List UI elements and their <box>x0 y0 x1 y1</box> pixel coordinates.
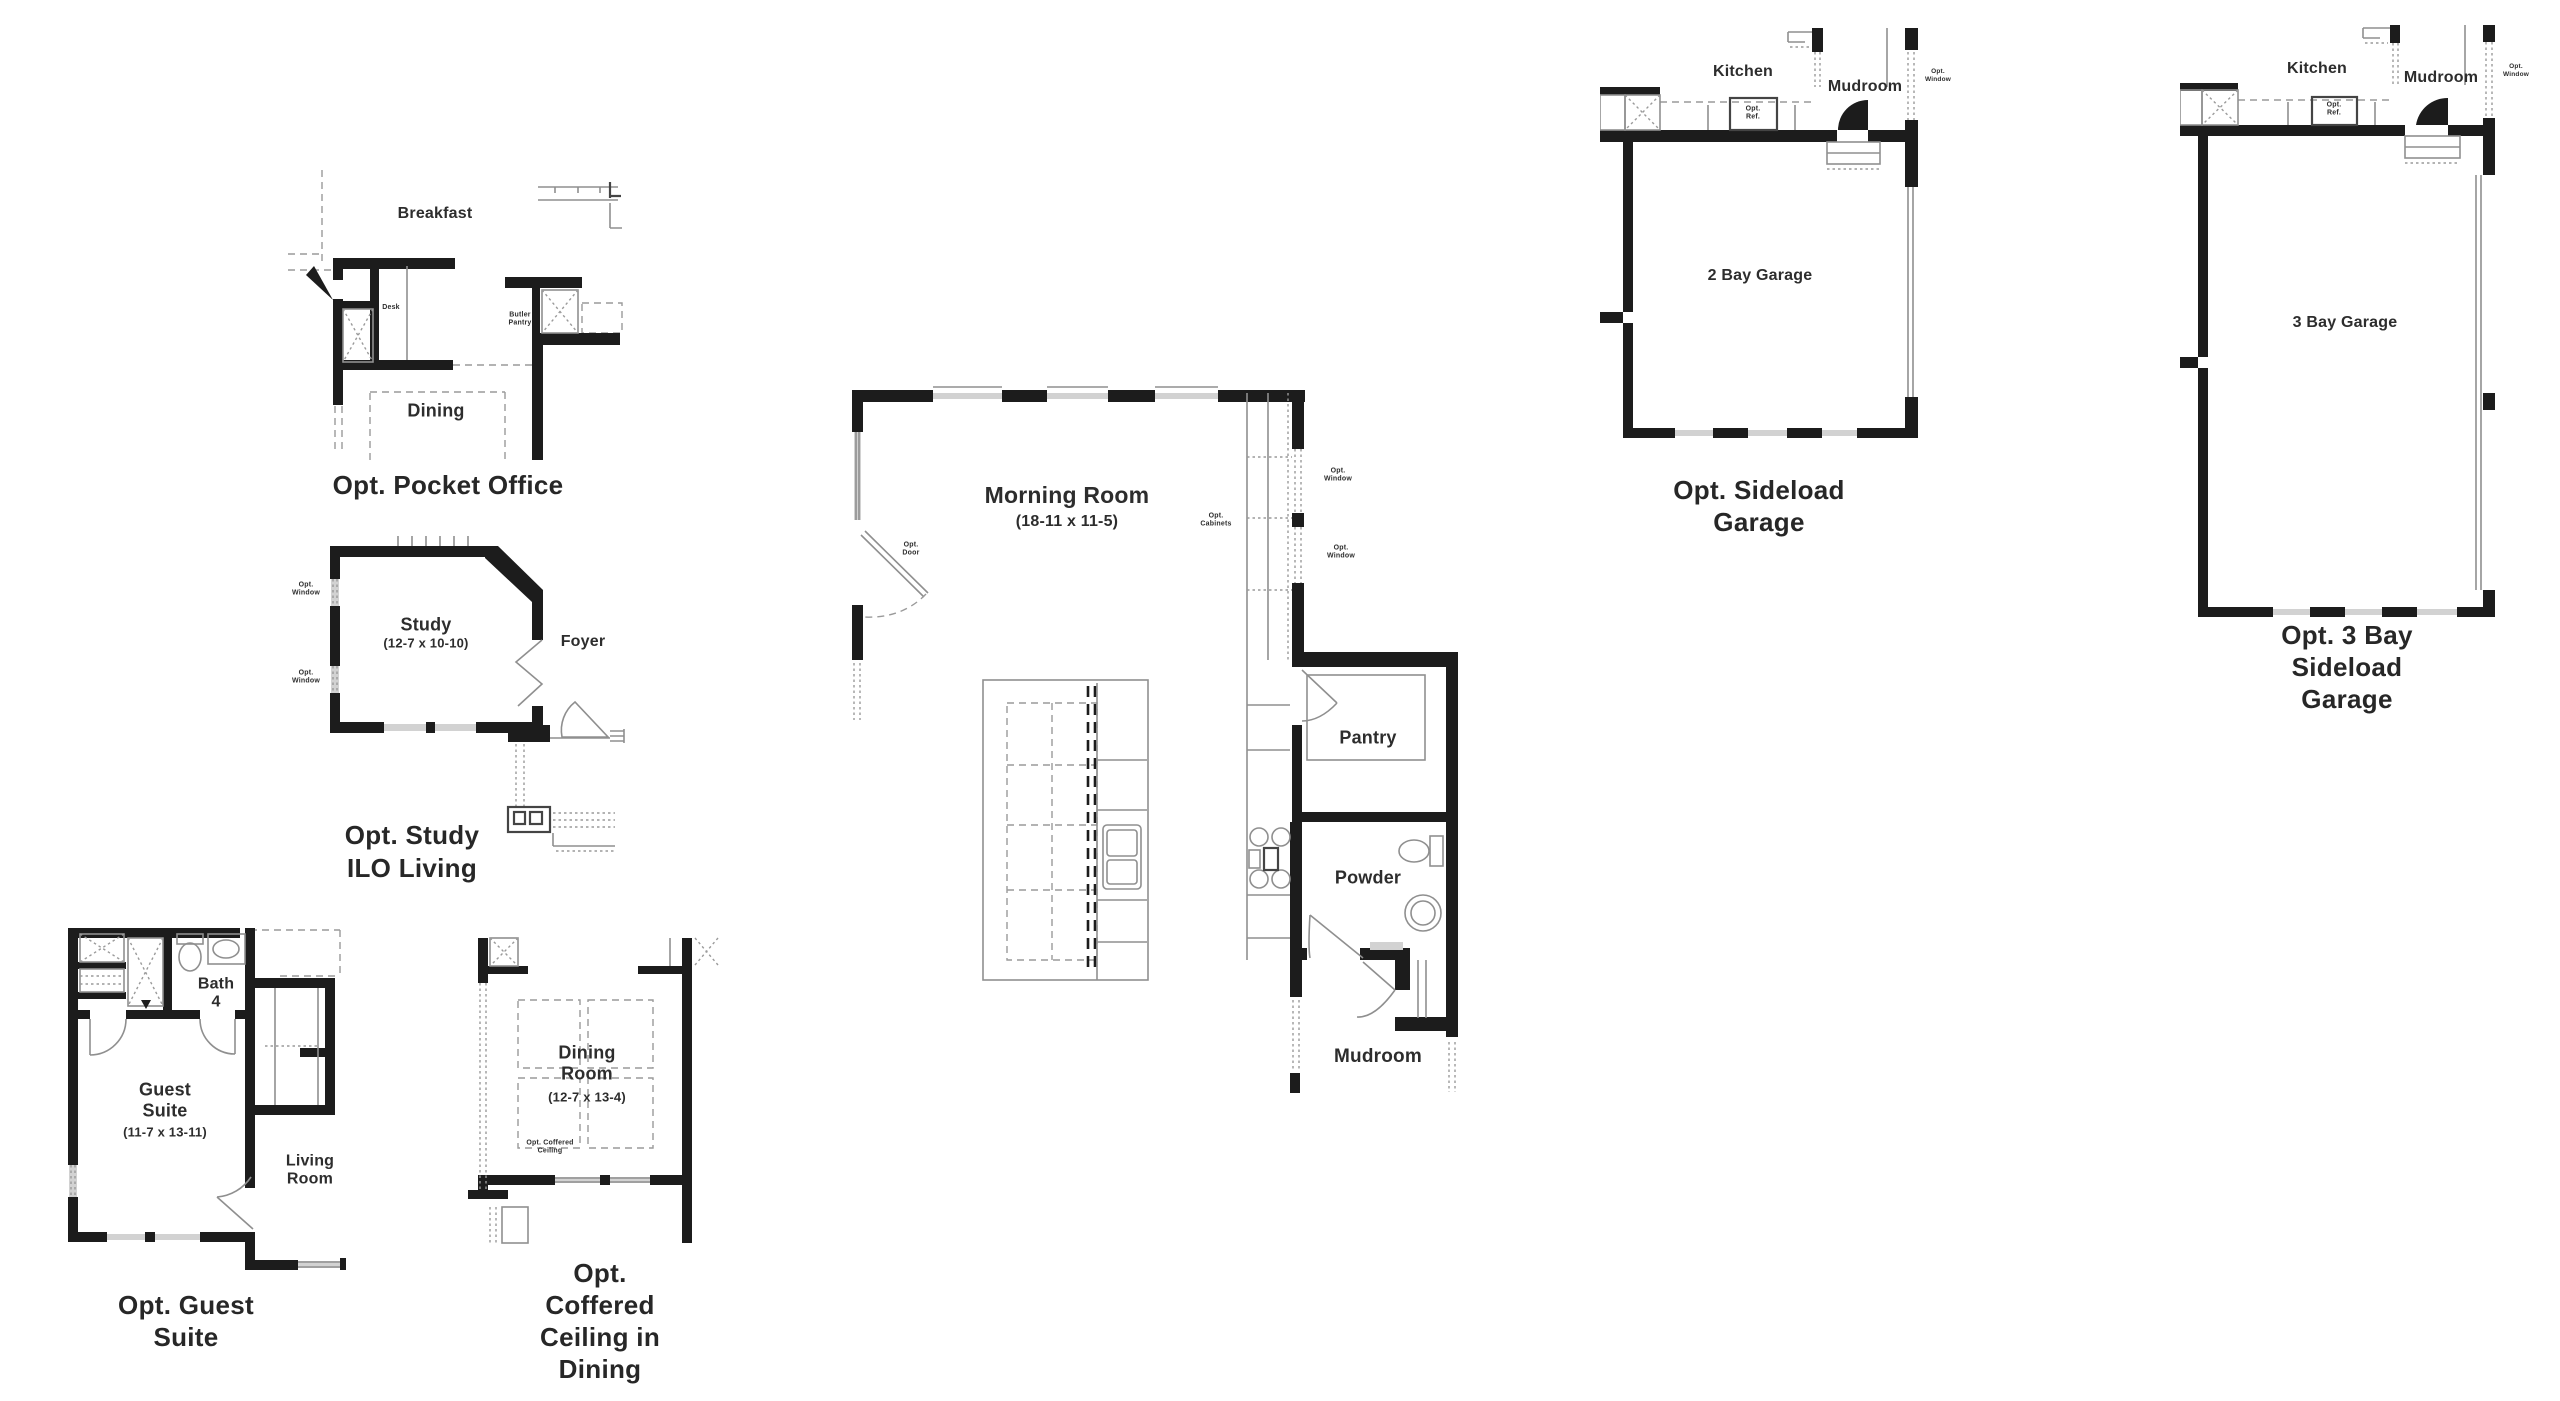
pantry-powder-mudroom-details <box>1302 670 1443 1018</box>
opt-cabinets-label: Opt. Cabinets <box>1200 513 1231 530</box>
garage3-kitchen-details <box>2180 25 2465 163</box>
cabinet-run <box>1247 393 1292 960</box>
morning-room-drawing <box>840 370 1480 1130</box>
opt-coffered-ceiling-label: Opt. Coffered Ceiling <box>526 1140 573 1157</box>
three-bay-garage-drawing <box>2180 20 2560 720</box>
dining-room-label: Dining Room <box>558 1042 615 1083</box>
mudroom-label: Mudroom <box>1334 1046 1422 1068</box>
kitchen-island <box>983 680 1148 980</box>
plan-pocket-office: Breakfast Desk Butler Pantry Dining Opt.… <box>280 170 700 510</box>
powder-label: Powder <box>1335 868 1401 889</box>
study-label: Study <box>400 615 451 636</box>
plan-coffered-dining: Dining Room (12-7 x 13-4) Opt. Coffered … <box>460 930 740 1365</box>
foyer-label: Foyer <box>561 633 606 651</box>
garage3-opt-ref-label: Opt. Ref. <box>2327 102 2342 119</box>
garage2-kitchen-details <box>1600 28 1887 169</box>
breakfast-label: Breakfast <box>398 205 473 223</box>
study-drawing <box>280 530 680 905</box>
plan-study-ilo-living: Opt. Window Opt. Window Study (12-7 x 10… <box>280 530 680 905</box>
garage2-label: 2 Bay Garage <box>1708 267 1813 285</box>
pocket-office-title: Opt. Pocket Office <box>333 469 564 501</box>
garage3-mudroom-label: Mudroom <box>2404 69 2478 87</box>
sideload-garage-title: Opt. Sideload Garage <box>1654 474 1865 538</box>
living-room-label: Living Room <box>286 1153 334 1190</box>
guest-suite-dims-label: (11-7 x 13-11) <box>123 1126 207 1141</box>
plan-sideload-garage: Kitchen Mudroom Opt. Window Opt. Ref. 2 … <box>1600 20 1970 535</box>
garage2-opt-ref-label: Opt. Ref. <box>1746 106 1761 123</box>
desk-label: Desk <box>382 304 400 312</box>
garage2-opt-window-label: Opt. Window <box>1925 68 1951 84</box>
dining-room-dims-label: (12-7 x 13-4) <box>548 1091 626 1106</box>
study-dims-label: (12-7 x 10-10) <box>383 637 468 652</box>
three-bay-garage-title: Opt. 3 Bay Sideload Garage <box>2241 619 2454 715</box>
opt-window-lower-label: Opt. Window <box>1327 545 1355 562</box>
opt-window-upper-label: Opt. Window <box>1324 468 1352 485</box>
opt-window-bottom-label: Opt. Window <box>292 670 320 687</box>
plan-three-bay-garage: Kitchen Mudroom Opt. Window Opt. Ref. 3 … <box>2180 20 2560 720</box>
coffered-dining-title: Opt. Coffered Ceiling in Dining <box>530 1257 670 1385</box>
pocket-office-counter-schematic <box>538 182 622 228</box>
pantry-label: Pantry <box>1339 728 1396 749</box>
butler-pantry-label: Butler Pantry <box>509 312 532 329</box>
guest-suite-stairs <box>265 988 318 1105</box>
opt-door-label: Opt. Door <box>902 542 919 559</box>
plan-morning-room: Morning Room (18-11 x 11-5) Opt. Door Op… <box>840 370 1480 1130</box>
bath4-label: Bath 4 <box>198 976 234 1013</box>
dining-label: Dining <box>407 401 464 422</box>
morning-room-dims-label: (18-11 x 11-5) <box>1016 513 1118 531</box>
range-cooktop <box>1249 828 1290 888</box>
pocket-office-walls <box>306 258 620 460</box>
garage3-label: 3 Bay Garage <box>2293 314 2398 332</box>
garage3-kitchen-label: Kitchen <box>2287 60 2347 78</box>
study-fireplace <box>508 744 615 851</box>
guest-suite-label: Guest Suite <box>139 1079 191 1120</box>
garage2-kitchen-label: Kitchen <box>1713 63 1773 81</box>
opt-window-top-label: Opt. Window <box>292 582 320 599</box>
guest-suite-dashed-context <box>250 930 340 976</box>
plan-guest-suite: Bath 4 Guest Suite (11-7 x 13-11) Living… <box>50 920 390 1350</box>
pocket-office-drawing <box>280 170 700 510</box>
morning-room-label: Morning Room <box>985 482 1150 508</box>
garage2-mudroom-label: Mudroom <box>1828 78 1902 96</box>
garage3-opt-window-label: Opt. Window <box>2503 63 2529 79</box>
floorplan-options-sheet: Breakfast Desk Butler Pantry Dining Opt.… <box>0 0 2560 1401</box>
guest-suite-title: Opt. Guest Suite <box>84 1289 288 1353</box>
study-title: Opt. Study ILO Living <box>345 819 479 885</box>
